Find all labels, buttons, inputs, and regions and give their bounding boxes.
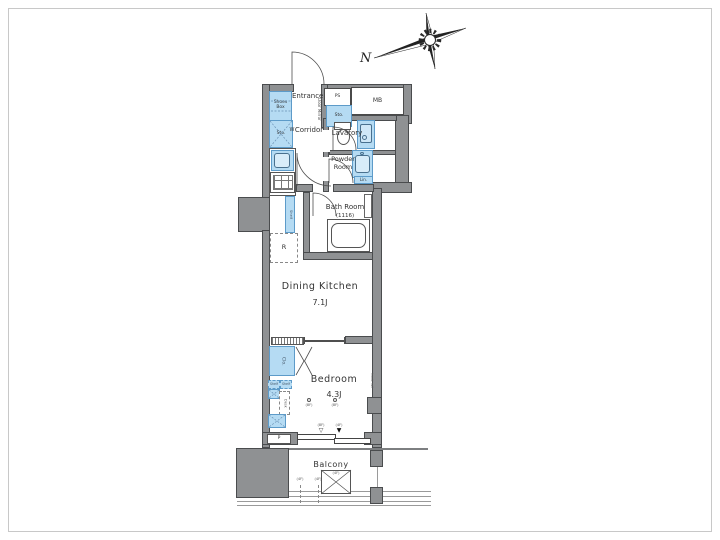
sliding-door-tick — [344, 337, 345, 344]
shelf-box-a: Shelf — [268, 380, 280, 389]
triangle-filled-glyph: ▼ — [331, 428, 347, 435]
pillar-balcony-b — [370, 487, 383, 504]
hatch-mark-label: (4F) — [326, 472, 346, 476]
refrigerator-label: R — [282, 244, 287, 251]
desk: Desk — [279, 391, 290, 415]
pillar-left-mid — [238, 197, 270, 232]
balcony-railing-line — [237, 501, 431, 502]
partition-hatched-strip — [271, 337, 304, 345]
meter-box: MB — [351, 87, 404, 115]
powder-room-label-2: Room — [327, 164, 359, 171]
wall-bath-left — [303, 192, 310, 258]
balcony-railing-line — [237, 505, 431, 506]
ceiling-mark-a-label: (8F) — [302, 404, 316, 408]
balcony-mark-a: (4F) — [292, 478, 308, 482]
window-sash-left — [297, 434, 336, 440]
shelf-b-label: Shelf — [282, 383, 290, 387]
storage-left-label: Sto. — [277, 132, 286, 137]
kitchen-stove — [270, 172, 295, 193]
hook-rail-label: hook rail — [364, 355, 373, 407]
shoes-box-label: Shoes Box — [272, 101, 290, 111]
balcony-drain-line-a — [300, 485, 301, 503]
floor-plan: PS MB Sto. Shoes Box Sto. Entrance Door … — [0, 0, 720, 540]
bath-room-label: Bath Room — [314, 204, 376, 212]
linen-box: Lin. — [354, 176, 373, 184]
dining-kitchen-label: Dining Kitchen — [270, 282, 370, 292]
pipe-box: P — [267, 434, 291, 444]
window-sash-right — [334, 438, 371, 444]
linen-label: Lin. — [360, 178, 367, 182]
wall-right-upper — [395, 115, 409, 189]
powder-sink-faucet — [360, 152, 364, 155]
pipe-space-label: PS — [335, 95, 341, 100]
shelf-box-b: Shelf — [280, 380, 292, 389]
sliding-door-track — [304, 340, 345, 342]
closet: Clo. — [269, 346, 295, 376]
storage-bottom-box — [268, 414, 286, 428]
kitchen-shelf: Shelf — [285, 196, 295, 233]
wall-bath-top-right — [333, 184, 374, 192]
dining-kitchen-size: 7.1J — [270, 299, 370, 308]
meter-box-label: MB — [373, 98, 382, 105]
storage-upper-label: Sto. — [335, 114, 344, 119]
bedroom-label: Bedroom — [296, 375, 372, 385]
pipe-space-box: PS — [324, 88, 351, 106]
closet-label: Clo. — [280, 357, 285, 366]
shelf-a-label: Shelf — [270, 383, 278, 387]
ceiling-mark-a-circle — [307, 398, 311, 402]
bathtub — [327, 219, 370, 252]
refrigerator-space: R — [270, 233, 298, 263]
ceiling-mark-b-label: (8F) — [328, 404, 342, 408]
desk-label: Desk — [283, 399, 287, 408]
triangle-open-glyph: ▽ — [313, 428, 329, 435]
bath-room-size: (1116) — [314, 213, 376, 219]
wall-bath-bottom — [303, 252, 373, 260]
ceiling-mark-b-circle — [333, 398, 337, 402]
wall-partition-right — [345, 336, 373, 344]
kitchen-shelf-label: Shelf — [288, 210, 292, 219]
lavatory-label: Lavatory — [325, 130, 369, 138]
door-mirror-label: Door Mirror — [313, 88, 321, 130]
pipe-label: P — [278, 437, 281, 442]
kitchen-sink-bowl — [274, 153, 290, 168]
corridor-label: Corridor — [292, 127, 326, 135]
balcony-mark-b: (4F) — [310, 478, 326, 482]
storage-left-box: Sto. — [269, 120, 293, 148]
stove-burner-grid — [273, 175, 293, 190]
pillar-left-bottom — [236, 448, 289, 498]
balcony-label: Balcony — [302, 461, 360, 470]
pillar-balcony-a — [370, 450, 383, 467]
kitchen-sink-unit — [271, 150, 294, 171]
balcony-rail-right — [377, 467, 378, 488]
shoes-box: Shoes Box — [269, 91, 292, 121]
bathtub-basin — [331, 223, 366, 248]
wall-bath-top-left — [296, 184, 313, 192]
sliding-door-tick — [304, 337, 305, 344]
balcony-drain-line-b — [318, 485, 319, 503]
